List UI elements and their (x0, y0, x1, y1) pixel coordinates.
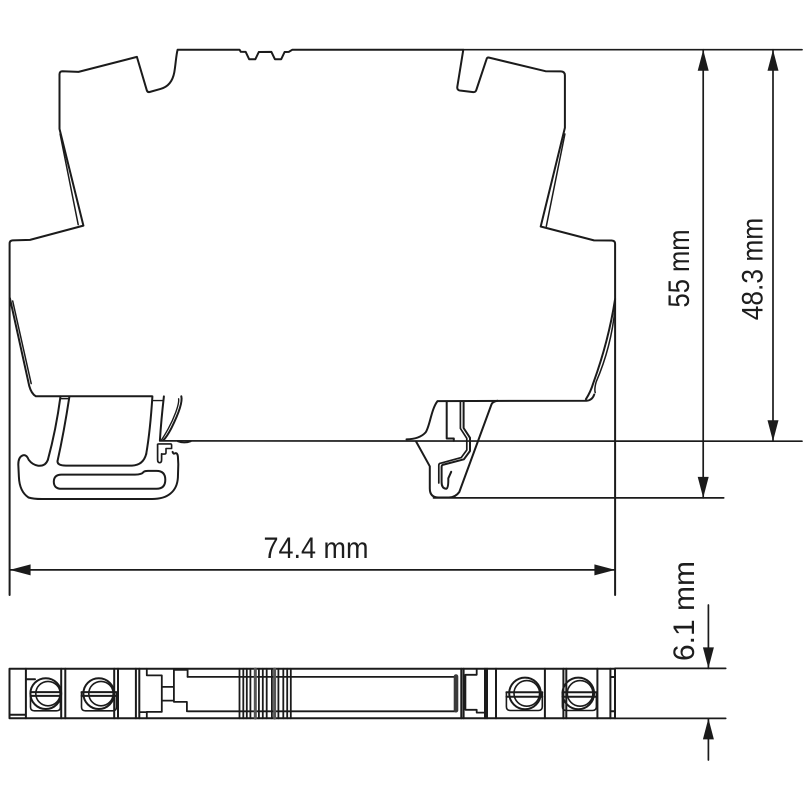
svg-text:48.3 mm: 48.3 mm (737, 218, 770, 321)
svg-text:6.1 mm: 6.1 mm (668, 561, 701, 661)
svg-text:74.4 mm: 74.4 mm (264, 532, 369, 565)
svg-text:55 mm: 55 mm (663, 230, 696, 308)
